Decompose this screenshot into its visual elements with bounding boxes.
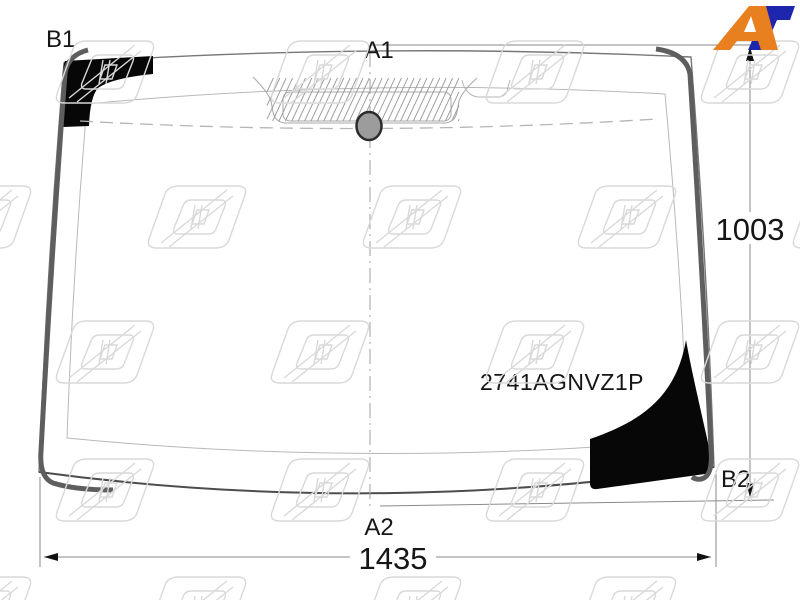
brand-at-logo-icon	[713, 6, 795, 50]
windshield-diagram-page: 1435 1003 B1 A1 A2 B2 2741AGNVZ1P	[0, 0, 800, 600]
brand-watermark-icon	[0, 186, 31, 248]
label-a1: A1	[364, 37, 393, 64]
brand-watermark-icon	[793, 186, 800, 248]
brand-watermark-icon	[0, 577, 31, 600]
label-a2: A2	[364, 514, 393, 541]
label-b1: B1	[46, 26, 75, 53]
brand-watermark-icon	[363, 577, 460, 600]
brand-watermark-icon	[148, 577, 245, 600]
height-dimension-value: 1003	[716, 212, 785, 247]
width-dimension-value: 1435	[359, 541, 428, 576]
brand-watermark-icon	[793, 577, 800, 600]
arrowhead-right	[697, 553, 711, 561]
windshield-diagram-svg: 1435 1003 B1 A1 A2 B2 2741AGNVZ1P	[0, 0, 800, 600]
brand-watermark-icon	[578, 577, 675, 600]
extension-line-bottom	[380, 500, 774, 506]
mirror-mount-button	[357, 112, 382, 140]
arrowhead-left	[44, 553, 58, 561]
